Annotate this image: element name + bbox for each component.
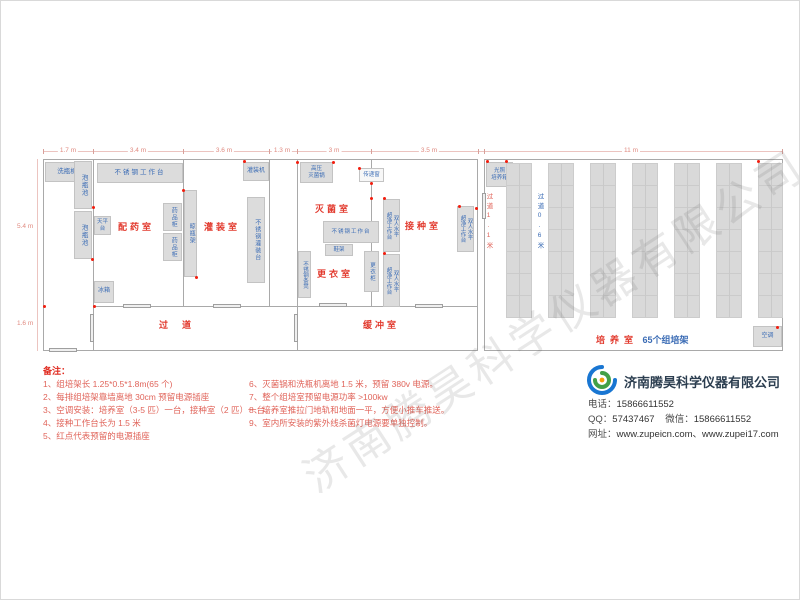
power-outlet-dot xyxy=(43,305,46,308)
equip-pass-window: 传递窗 xyxy=(359,168,384,182)
dim-tick xyxy=(782,149,783,154)
note-item-6: 6、灭菌锅和洗瓶机离地 1.5 米，预留 380v 电源。 xyxy=(249,378,438,390)
note-item-8: 8、培养室推拉门地轨和地面一平，方便小推车推送。 xyxy=(249,404,449,416)
company-website-line: 网址：www.zupeicn.com、www.zupei17.com xyxy=(588,426,779,440)
dim-tick xyxy=(183,149,184,154)
culture-rack xyxy=(716,163,742,318)
door-marker xyxy=(415,304,443,308)
room-label-buffer: 缓冲室 xyxy=(363,318,399,331)
equip-laminar-flow-bench: 双人水平 超净工作台 xyxy=(457,206,474,252)
equip-laminar-flow-bench: 双人水平 超净工作台 xyxy=(383,254,400,307)
power-outlet-dot xyxy=(486,160,489,163)
culture-room-caption: 培养室 65个组培架 xyxy=(596,330,688,348)
dim-label-1-7m: 1.7 m xyxy=(58,147,78,154)
power-outlet-dot xyxy=(505,160,508,163)
equip-autoclave: 高压 灭菌锅 xyxy=(300,162,333,183)
equip-locker: 更衣柜 xyxy=(364,251,379,292)
power-outlet-dot xyxy=(93,305,96,308)
note-item-3: 3、空调安装：培养室（3-5 匹）一台，接种室（2 匹）一台。 xyxy=(43,404,273,416)
dim-tick xyxy=(478,149,479,154)
culture-rack xyxy=(674,163,700,318)
room-label-changing: 更衣室 xyxy=(317,267,353,280)
company-qq-wechat-line: QQ：57437467 微信：15866611552 xyxy=(588,411,751,425)
phone-number: 15866611552 xyxy=(617,399,674,410)
room-label-corridor: 过道 xyxy=(159,318,205,331)
dim-tick xyxy=(43,149,44,154)
power-outlet-dot xyxy=(475,207,478,210)
culture-rack xyxy=(632,163,658,318)
note-item-5: 5、红点代表预留的电源插座 xyxy=(43,430,150,442)
phone-label: 电话： xyxy=(588,399,617,410)
qq-number: 57437467 xyxy=(612,414,654,425)
dim-tick xyxy=(269,149,270,154)
dim-label-5-4m: 5.4 m xyxy=(17,223,33,230)
door-marker xyxy=(49,348,77,352)
equip-medicine-cabinet: 药品柜 xyxy=(163,203,182,231)
equip-shoe-rack: 鞋架 xyxy=(325,244,353,256)
door-marker xyxy=(123,304,151,308)
power-outlet-dot xyxy=(458,205,461,208)
power-outlet-dot xyxy=(757,160,760,163)
equip-refrigerator: 冰箱 xyxy=(94,281,114,303)
power-outlet-dot xyxy=(296,161,299,164)
power-outlet-dot xyxy=(332,161,335,164)
culture-rack xyxy=(590,163,616,318)
room-label-filling: 灌装室 xyxy=(204,220,240,233)
culture-rack-count: 65个组培架 xyxy=(642,335,688,345)
dim-tick xyxy=(93,149,94,154)
dim-tick xyxy=(297,149,298,154)
top-dimension-line xyxy=(43,151,783,152)
power-outlet-dot xyxy=(92,206,95,209)
door-marker xyxy=(319,303,347,307)
aisle-label-0-6m: 过道0.6米 xyxy=(534,193,544,252)
door-marker xyxy=(294,314,298,342)
note-item-7: 7、整个组培室预留电源功率 >100kw xyxy=(249,391,388,403)
door-marker xyxy=(213,304,241,308)
room-label-preparation: 配药室 xyxy=(118,220,154,233)
website-label: 网址： xyxy=(588,429,617,440)
dim-label-3m: 3 m xyxy=(327,147,342,154)
equip-medicine-cabinet: 药品柜 xyxy=(163,233,182,261)
dim-label-3-4m: 3.4 m xyxy=(128,147,148,154)
equip-balance-table: 天平台 xyxy=(94,216,111,235)
wechat-number: 15866611552 xyxy=(694,414,751,425)
power-outlet-dot xyxy=(195,276,198,279)
power-outlet-dot xyxy=(383,252,386,255)
wall xyxy=(269,159,270,306)
dim-label-1-6m: 1.6 m xyxy=(17,320,33,327)
dim-label-1-3m: 1.3 m xyxy=(272,147,292,154)
equip-air-conditioner: 空调 xyxy=(753,326,782,347)
equip-steel-bench: 不锈钢条凳 xyxy=(298,251,311,298)
door-marker xyxy=(90,314,94,342)
wechat-label: 微信： xyxy=(665,414,694,425)
notes-header: 备注： xyxy=(43,364,70,377)
equip-filling-machine: 灌装机 xyxy=(243,162,269,181)
power-outlet-dot xyxy=(182,189,185,192)
power-outlet-dot xyxy=(383,197,386,200)
floor-plan-sheet: 1.7 m 3.4 m 3.6 m 1.3 m 3 m 3.5 m 11 m 5… xyxy=(0,0,800,600)
power-outlet-dot xyxy=(776,326,779,329)
dim-tick xyxy=(484,149,485,154)
culture-rack xyxy=(506,163,532,318)
company-name: 济南腾昊科学仪器有限公司 xyxy=(624,372,780,391)
note-item-2: 2、每排组培架靠墙离地 30cm 预留电源插座 xyxy=(43,391,209,403)
dim-label-11m: 11 m xyxy=(622,147,640,154)
note-item-1: 1、组培架长 1.25*0.5*1.8m(65 个) xyxy=(43,378,172,390)
equip-steel-worktable: 不锈钢工作台 xyxy=(323,221,379,243)
room-label-inoculation: 接种室 xyxy=(405,219,441,232)
note-item-4: 4、接种工作台长为 1.5 米 xyxy=(43,417,141,429)
power-outlet-dot xyxy=(358,167,361,170)
room-label-sterilization: 灭菌室 xyxy=(315,202,351,215)
dim-tick xyxy=(371,149,372,154)
left-dimension-line xyxy=(37,159,38,351)
company-phone-line: 电话：15866611552 xyxy=(588,396,674,410)
room-label-culture: 培养室 xyxy=(596,335,638,345)
equip-steel-filling-table: 不锈钢灌装台 xyxy=(247,197,265,283)
culture-rack xyxy=(758,163,783,318)
power-outlet-dot xyxy=(243,160,246,163)
equip-soaking-pool: 泡瓶池 xyxy=(74,211,92,259)
dim-label-3-6m: 3.6 m xyxy=(214,147,234,154)
qq-label: QQ： xyxy=(588,414,612,425)
equip-bottle-rack: 晾瓶架 xyxy=(184,190,197,277)
equip-laminar-flow-bench: 双人水平 超净工作台 xyxy=(383,199,400,252)
power-outlet-dot xyxy=(370,182,373,185)
equip-steel-worktable: 不锈钢工作台 xyxy=(97,163,183,183)
equip-soaking-pool: 泡瓶池 xyxy=(74,161,92,209)
note-item-9: 9、室内所安装的紫外线杀菌灯电源要单独控制。 xyxy=(249,417,432,429)
power-outlet-dot xyxy=(91,258,94,261)
website-urls: www.zupeicn.com、www.zupei17.com xyxy=(617,429,779,440)
company-logo-icon xyxy=(586,364,618,396)
power-outlet-dot xyxy=(370,197,373,200)
dim-label-3-5m: 3.5 m xyxy=(419,147,439,154)
aisle-label-1-1m: 过道1.1米 xyxy=(483,193,493,252)
culture-rack xyxy=(548,163,574,318)
